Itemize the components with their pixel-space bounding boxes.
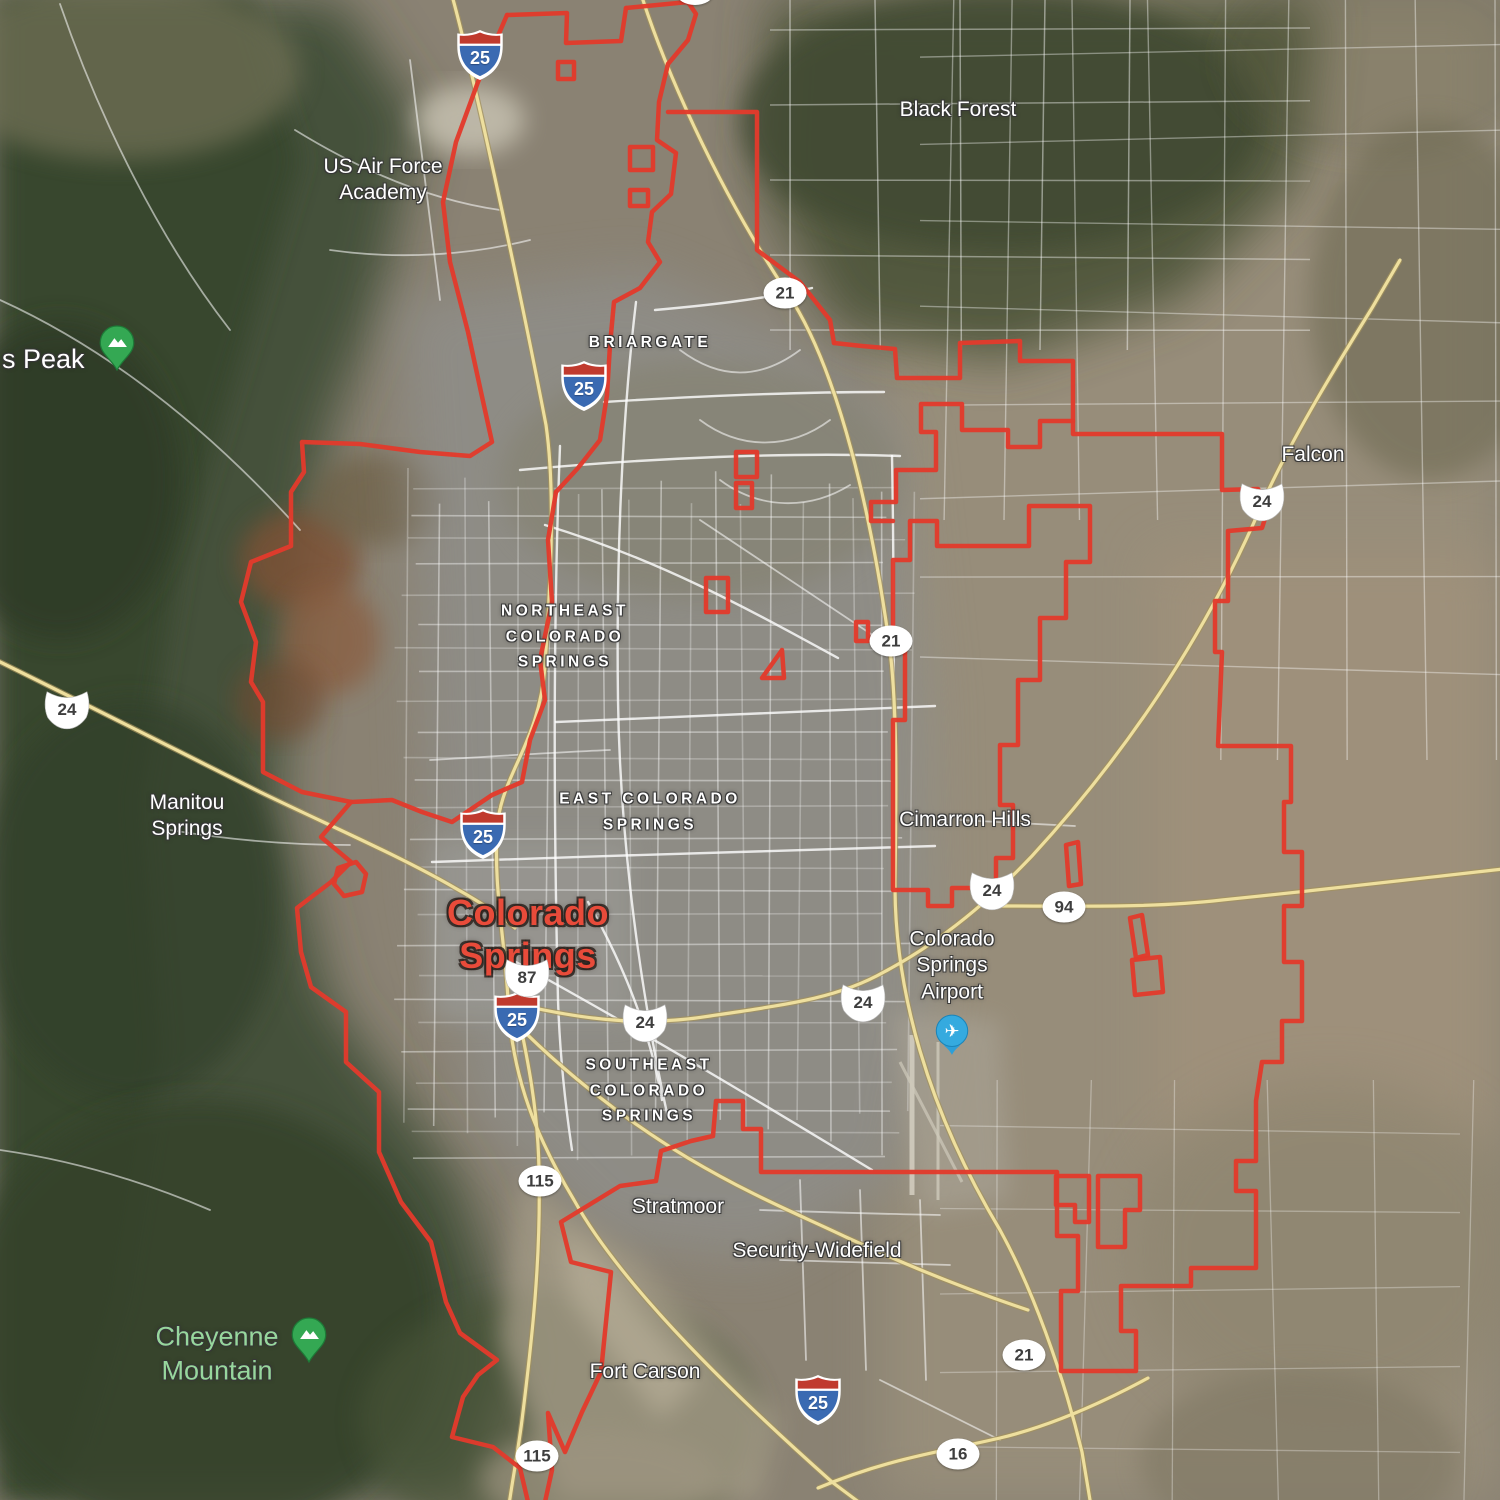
- route-number: 25: [470, 48, 490, 69]
- route-number: 24: [854, 993, 873, 1013]
- label-northeast-colorado-springs: NORTHEASTCOLORADOSPRINGS: [501, 599, 629, 676]
- route-shield-interstate-25: 25: [460, 809, 506, 859]
- map-viewport[interactable]: Black ForestUS Air ForceAcademys PeakBRI…: [0, 0, 1500, 1500]
- label-line: Fort Carson: [590, 1359, 701, 1385]
- route-shield-circle-115: 115: [516, 1441, 559, 1472]
- route-number: 25: [473, 827, 493, 848]
- label-east-colorado-springs: EAST COLORADOSPRINGS: [559, 786, 741, 837]
- route-shield-circle-94: 94: [1043, 892, 1086, 923]
- route-number: 115: [526, 1171, 553, 1191]
- route-shield-us-87: 87: [504, 958, 551, 998]
- route-number: 16: [949, 1444, 968, 1464]
- label-line: Cimarron Hills: [899, 807, 1031, 833]
- route-shield-interstate-25: 25: [561, 361, 607, 411]
- svg-text:✈: ✈: [945, 1021, 960, 1042]
- route-number: 21: [1015, 1345, 1034, 1365]
- label-pikes-peak: s Peak: [2, 343, 85, 377]
- label-line: SOUTHEAST: [585, 1053, 712, 1079]
- label-fort-carson: Fort Carson: [590, 1359, 701, 1385]
- route-number: 115: [523, 1446, 550, 1466]
- label-line: SPRINGS: [559, 812, 741, 838]
- partial-route-shield: [677, 0, 713, 5]
- label-cimarron-hills: Cimarron Hills: [899, 807, 1031, 833]
- label-falcon: Falcon: [1281, 442, 1344, 468]
- route-shield-interstate-25: 25: [494, 992, 540, 1042]
- label-line: Colorado: [447, 891, 609, 934]
- route-number: 87: [518, 968, 537, 988]
- route-shield-us-24: 24: [840, 983, 887, 1023]
- map-overlay: Black ForestUS Air ForceAcademys PeakBRI…: [0, 0, 1500, 1500]
- route-number: 24: [1253, 492, 1272, 512]
- route-shield-interstate-25: 25: [795, 1375, 841, 1425]
- route-number: 21: [882, 631, 901, 651]
- route-shield-us-24: 24: [1239, 482, 1286, 522]
- route-shield-circle-16: 16: [937, 1439, 980, 1470]
- label-southeast-colorado-springs: SOUTHEASTCOLORADOSPRINGS: [585, 1053, 712, 1130]
- label-line: NORTHEAST: [501, 599, 629, 625]
- label-black-forest: Black Forest: [900, 97, 1017, 123]
- route-number: 25: [507, 1010, 527, 1031]
- label-line: Stratmoor: [632, 1194, 724, 1220]
- label-line: Falcon: [1281, 442, 1344, 468]
- label-briargate: BRIARGATE: [589, 330, 712, 356]
- label-security-widefield: Security-Widefield: [732, 1238, 901, 1264]
- label-line: s Peak: [2, 343, 85, 377]
- mountain-pin[interactable]: [291, 1317, 327, 1368]
- airport-pin[interactable]: ✈: [935, 1013, 969, 1062]
- label-cheyenne-mountain: CheyenneMountain: [155, 1320, 278, 1388]
- route-shield-us-24: 24: [969, 871, 1016, 911]
- label-line: Springs: [909, 953, 994, 979]
- label-colorado-springs-airport: ColoradoSpringsAirport: [909, 927, 994, 1006]
- route-number: 94: [1055, 897, 1074, 917]
- route-number: 24: [58, 700, 77, 720]
- label-line: Black Forest: [900, 97, 1017, 123]
- label-stratmoor: Stratmoor: [632, 1194, 724, 1220]
- label-line: Springs: [150, 816, 225, 842]
- label-line: EAST COLORADO: [559, 786, 741, 812]
- label-line: Security-Widefield: [732, 1238, 901, 1264]
- label-line: Academy: [323, 180, 442, 206]
- route-shield-circle-115: 115: [519, 1166, 562, 1197]
- route-shield-interstate-25: 25: [457, 30, 503, 80]
- label-line: Mountain: [155, 1354, 278, 1388]
- label-line: COLORADO: [501, 624, 629, 650]
- route-number: 25: [808, 1393, 828, 1414]
- label-line: COLORADO: [585, 1078, 712, 1104]
- mountain-pin[interactable]: [99, 325, 135, 376]
- label-line: Manitou: [150, 790, 225, 816]
- label-line: Colorado: [909, 927, 994, 953]
- route-shield-circle-21: 21: [764, 278, 807, 309]
- route-number: 25: [574, 379, 594, 400]
- label-line: BRIARGATE: [589, 330, 712, 356]
- label-line: US Air Force: [323, 154, 442, 180]
- route-shield-circle-21: 21: [1003, 1340, 1046, 1371]
- label-line: SPRINGS: [501, 650, 629, 676]
- route-shield-circle-21: 21: [870, 626, 913, 657]
- label-line: Airport: [909, 979, 994, 1005]
- route-shield-us-24: 24: [44, 690, 91, 730]
- label-line: SPRINGS: [585, 1104, 712, 1130]
- route-number: 21: [776, 283, 795, 303]
- label-us-air-force-academy: US Air ForceAcademy: [323, 154, 442, 207]
- route-number: 24: [636, 1013, 655, 1033]
- label-manitou-springs: ManitouSprings: [150, 790, 225, 843]
- route-shield-us-24: 24: [622, 1003, 669, 1043]
- route-number: 24: [983, 881, 1002, 901]
- label-line: Cheyenne: [155, 1320, 278, 1354]
